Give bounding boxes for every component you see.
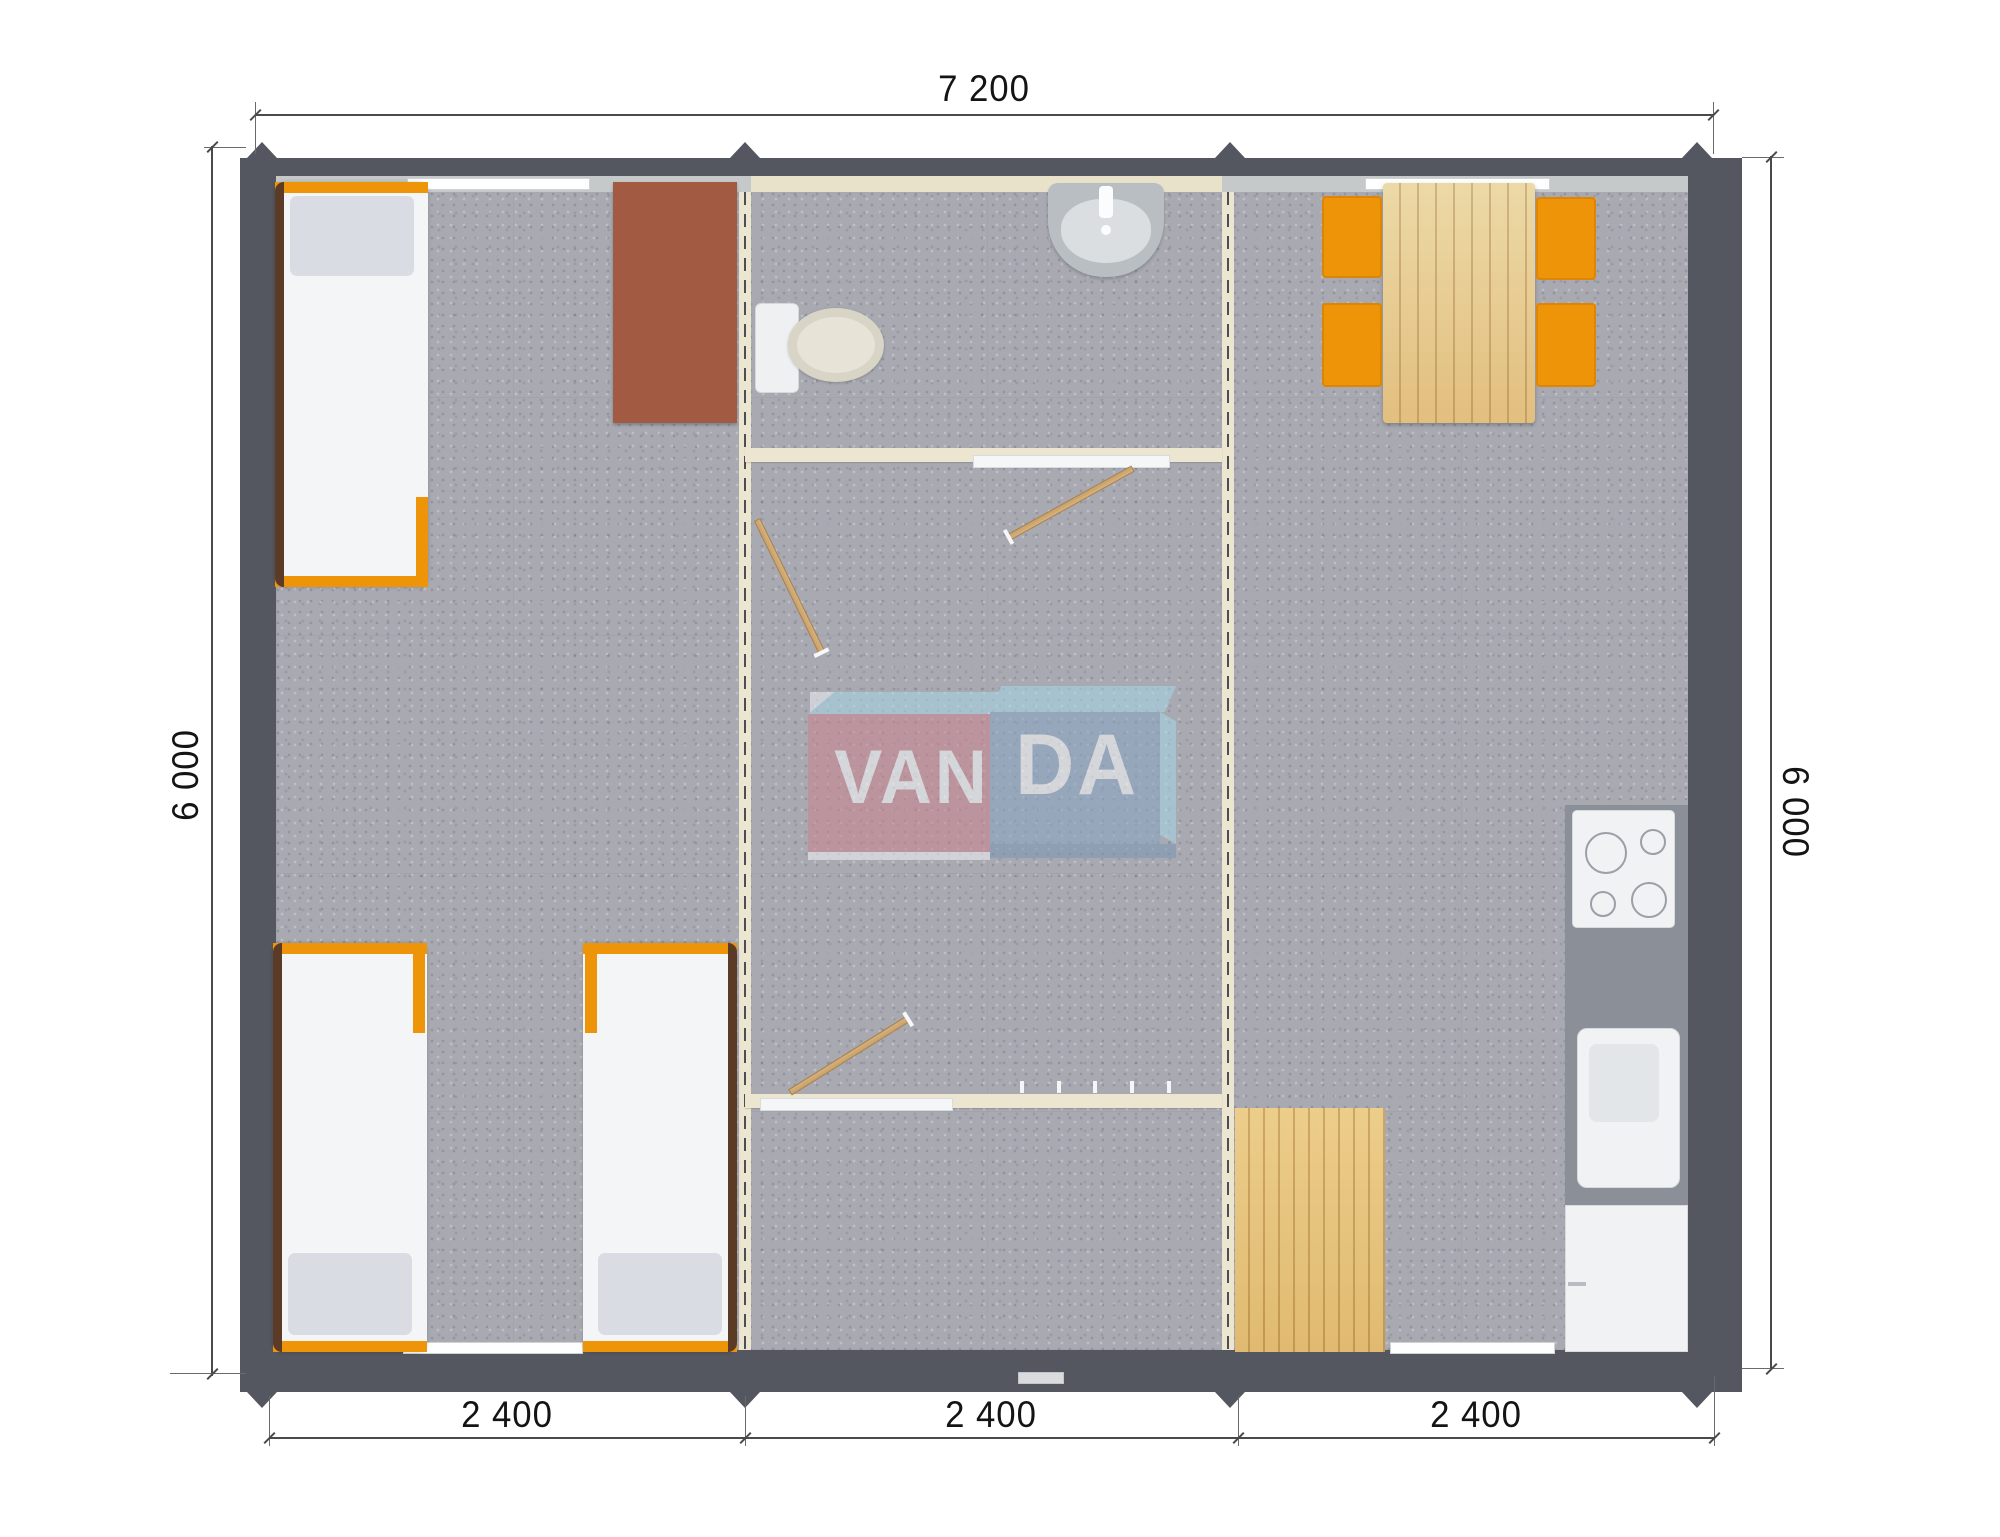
sink-basin [1589, 1044, 1659, 1122]
bed-frame-rail [583, 943, 737, 954]
extension-line [255, 102, 256, 154]
dimension-line-bottom [269, 1437, 1714, 1439]
bed-frame-post [585, 943, 597, 1033]
drain-icon [1101, 225, 1111, 235]
cooktop [1572, 810, 1675, 928]
dining-chair [1536, 303, 1596, 387]
burner-icon [1585, 832, 1627, 874]
wood-floor-patch [1235, 1108, 1385, 1352]
logo-red-box-top [808, 692, 1014, 714]
bed-frame-rail [275, 576, 428, 587]
logo-text-van: VAN [834, 734, 990, 821]
faucet-icon [1099, 186, 1113, 218]
coat-hook-icon [1093, 1081, 1097, 1093]
burner-icon [1631, 882, 1667, 918]
bed-frame-rail [275, 182, 428, 193]
corner-fitting-icon [247, 142, 277, 158]
bed-frame-post [416, 497, 428, 587]
burner-icon [1590, 891, 1616, 917]
bed-frame-rail [273, 943, 427, 954]
corner-fitting-icon [1215, 142, 1245, 158]
window-bottom-left [403, 1342, 583, 1354]
dimension-line-top [255, 114, 1713, 116]
coat-hook-icon [1130, 1081, 1134, 1093]
single-bed-top-left [275, 182, 428, 587]
dining-chair [1322, 196, 1382, 278]
dimension-label-bottom-2: 2 400 [945, 1394, 1037, 1436]
window-top-left [407, 178, 590, 190]
logo-text-da: DA [1015, 716, 1139, 815]
window-bottom-right [1390, 1342, 1555, 1354]
bathroom-sliding-door [973, 455, 1170, 468]
module-divider-right [1222, 192, 1234, 1350]
single-bed-bottom-left [273, 943, 427, 1352]
coat-hook-icon [1057, 1081, 1061, 1093]
corner-fitting-icon [1682, 1392, 1712, 1408]
toilet [788, 308, 884, 382]
dimension-line-right [1770, 156, 1772, 1370]
entrance-threshold [1018, 1372, 1064, 1384]
bed-frame-post [413, 943, 425, 1033]
coat-hook-icon [1167, 1081, 1171, 1093]
logo-blue-box-top [990, 686, 1176, 712]
logo-blue-box-shadow [990, 844, 1176, 858]
burner-icon [1640, 829, 1666, 855]
extension-line [1742, 157, 1784, 158]
desk [613, 182, 737, 423]
dimension-label-bottom-3: 2 400 [1430, 1394, 1522, 1436]
pillow [290, 196, 414, 276]
fridge-handle-icon [1568, 1282, 1586, 1286]
vanda-logo: VAN DA [808, 686, 1190, 862]
single-bed-bottom-middle [583, 943, 737, 1352]
bed-frame-side [273, 943, 282, 1352]
module-divider-left [739, 192, 751, 1350]
fridge [1565, 1205, 1688, 1352]
pillow [288, 1253, 412, 1335]
extension-line [1713, 102, 1714, 154]
extension-line [1742, 1368, 1784, 1369]
bed-frame-side [275, 182, 284, 587]
rear-room-sliding-door [760, 1098, 953, 1111]
toilet-seat [797, 317, 875, 373]
corner-fitting-icon [247, 1392, 277, 1408]
dimension-line-left [211, 146, 213, 1376]
logo-blue-box-side [1160, 712, 1176, 844]
bed-frame-side [728, 943, 737, 1352]
kitchen-sink [1577, 1028, 1680, 1188]
corner-fitting-icon [1682, 142, 1712, 158]
dimension-label-right: 6 000 [1774, 766, 1816, 858]
coat-hook-icon [1020, 1081, 1024, 1093]
corner-fitting-icon [1215, 1392, 1245, 1408]
dining-table [1383, 183, 1535, 423]
logo-red-box-base [808, 852, 990, 860]
pillow [598, 1253, 722, 1335]
dimension-label-left: 6 000 [165, 729, 207, 821]
dimension-label-bottom-1: 2 400 [461, 1394, 553, 1436]
floor-plan-canvas: VAN DA 7 200 6 000 6 000 [0, 0, 2000, 1537]
dining-chair [1322, 303, 1382, 387]
corner-fitting-icon [730, 142, 760, 158]
dining-chair [1536, 197, 1596, 280]
dimension-label-top: 7 200 [938, 68, 1030, 110]
extension-line [170, 1373, 246, 1374]
bed-frame-rail [583, 1341, 737, 1352]
bed-frame-rail [273, 1341, 427, 1352]
